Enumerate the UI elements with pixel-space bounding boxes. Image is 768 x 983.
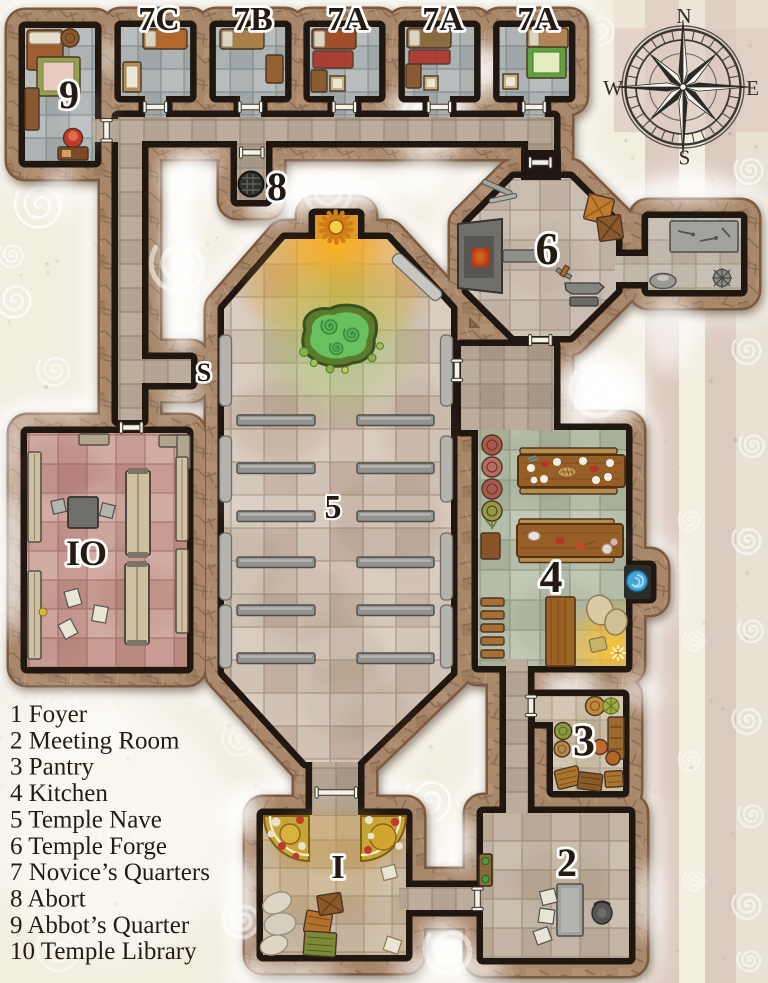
svg-text:8: 8 [267, 164, 287, 209]
svg-text:9 Abbot’s Quarter: 9 Abbot’s Quarter [10, 912, 190, 939]
svg-text:3 Pantry: 3 Pantry [10, 754, 95, 781]
svg-text:5: 5 [325, 489, 342, 526]
svg-text:I: I [331, 849, 344, 886]
svg-text:E: E [746, 76, 759, 100]
svg-text:2: 2 [557, 840, 577, 885]
svg-text:8 Abort: 8 Abort [10, 886, 86, 913]
svg-text:7A: 7A [422, 1, 464, 38]
svg-text:S: S [197, 358, 211, 387]
svg-text:9: 9 [59, 72, 79, 117]
svg-text:6 Temple Forge: 6 Temple Forge [10, 833, 167, 860]
svg-text:5 Temple Nave: 5 Temple Nave [10, 806, 162, 833]
svg-text:S: S [679, 146, 691, 170]
svg-text:4 Kitchen: 4 Kitchen [10, 780, 108, 807]
svg-text:N: N [676, 4, 691, 28]
svg-text:7C: 7C [138, 1, 180, 38]
svg-text:6: 6 [536, 223, 559, 274]
svg-text:10 Temple Library: 10 Temple Library [10, 938, 197, 965]
svg-text:7A: 7A [517, 1, 559, 38]
svg-text:IO: IO [66, 533, 106, 573]
svg-text:1 Foyer: 1 Foyer [10, 701, 88, 728]
svg-text:7 Novice’s Quarters: 7 Novice’s Quarters [10, 859, 210, 886]
svg-text:7B: 7B [233, 1, 273, 38]
svg-text:W: W [603, 76, 623, 100]
svg-text:3: 3 [573, 716, 595, 765]
svg-text:4: 4 [540, 551, 563, 602]
svg-text:2 Meeting Room: 2 Meeting Room [10, 727, 180, 754]
svg-text:7A: 7A [327, 1, 369, 38]
